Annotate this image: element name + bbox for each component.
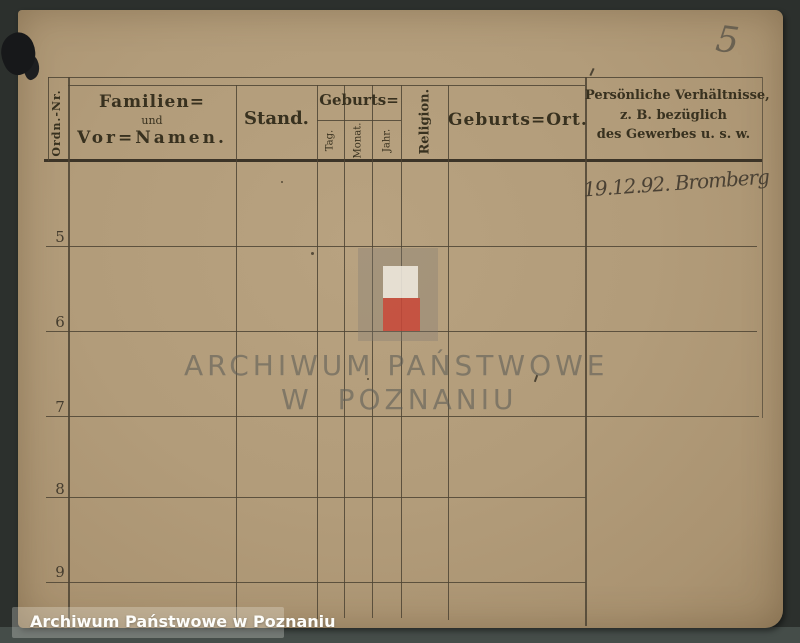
column-header-persoenliche-2: z. B. bezüglich — [585, 108, 762, 123]
paper-speckle — [281, 181, 283, 183]
column-header-geburts: Geburts= — [317, 91, 401, 109]
column-header-und: und — [68, 114, 236, 127]
grid-line-ordn-nr — [68, 77, 70, 626]
column-header-religion: Religion. — [418, 91, 431, 155]
grid-line-row-8 — [46, 497, 586, 498]
watermark-line-2: W POZNANIU — [281, 383, 518, 416]
row-number-9: 9 — [52, 563, 68, 581]
row-number-5: 5 — [52, 228, 68, 246]
row-number-8: 8 — [52, 480, 68, 498]
column-header-ordn-nr: Ordn.-Nr. — [50, 78, 64, 168]
row-number-7: 7 — [52, 398, 68, 416]
column-header-persoenliche-1: Persönliche Verhältnisse, — [585, 88, 762, 103]
grid-line-row-7 — [46, 416, 759, 417]
watermark-flag-white — [383, 266, 418, 298]
paper-speckle — [311, 252, 314, 255]
footer-credit-text: Archiwum Państwowe w Poznaniu — [30, 612, 336, 631]
watermark-line-1: ARCHIWUM PAŃSTWOWE — [184, 349, 609, 382]
column-header-persoenliche-3: des Gewerbes u. s. w. — [585, 127, 762, 142]
row-number-6: 6 — [52, 313, 68, 331]
grid-line-row-9 — [46, 582, 586, 583]
grid-line-header-bottom — [44, 159, 762, 162]
grid-line-left-border — [48, 77, 49, 161]
column-header-familien: Familien= — [68, 92, 236, 112]
column-header-geburts-ort: Geburts=Ort. — [448, 110, 585, 130]
column-header-vor-namen: Vor=Namen. — [68, 128, 236, 148]
column-header-jahr: Jahr. — [382, 119, 393, 163]
watermark-flag-red — [383, 298, 420, 331]
scanned-document-view: Ordn.-Nr. Familien= und Vor=Namen. Stand… — [0, 0, 800, 643]
column-header-tag: Tag. — [325, 119, 336, 163]
grid-line-top-inner — [68, 85, 585, 86]
column-header-stand: Stand. — [236, 108, 317, 129]
grid-line-top-outer — [48, 77, 762, 78]
column-header-monat: Monat. — [353, 119, 364, 163]
grid-line-right-border — [762, 77, 763, 418]
paper-speckle — [367, 378, 369, 380]
